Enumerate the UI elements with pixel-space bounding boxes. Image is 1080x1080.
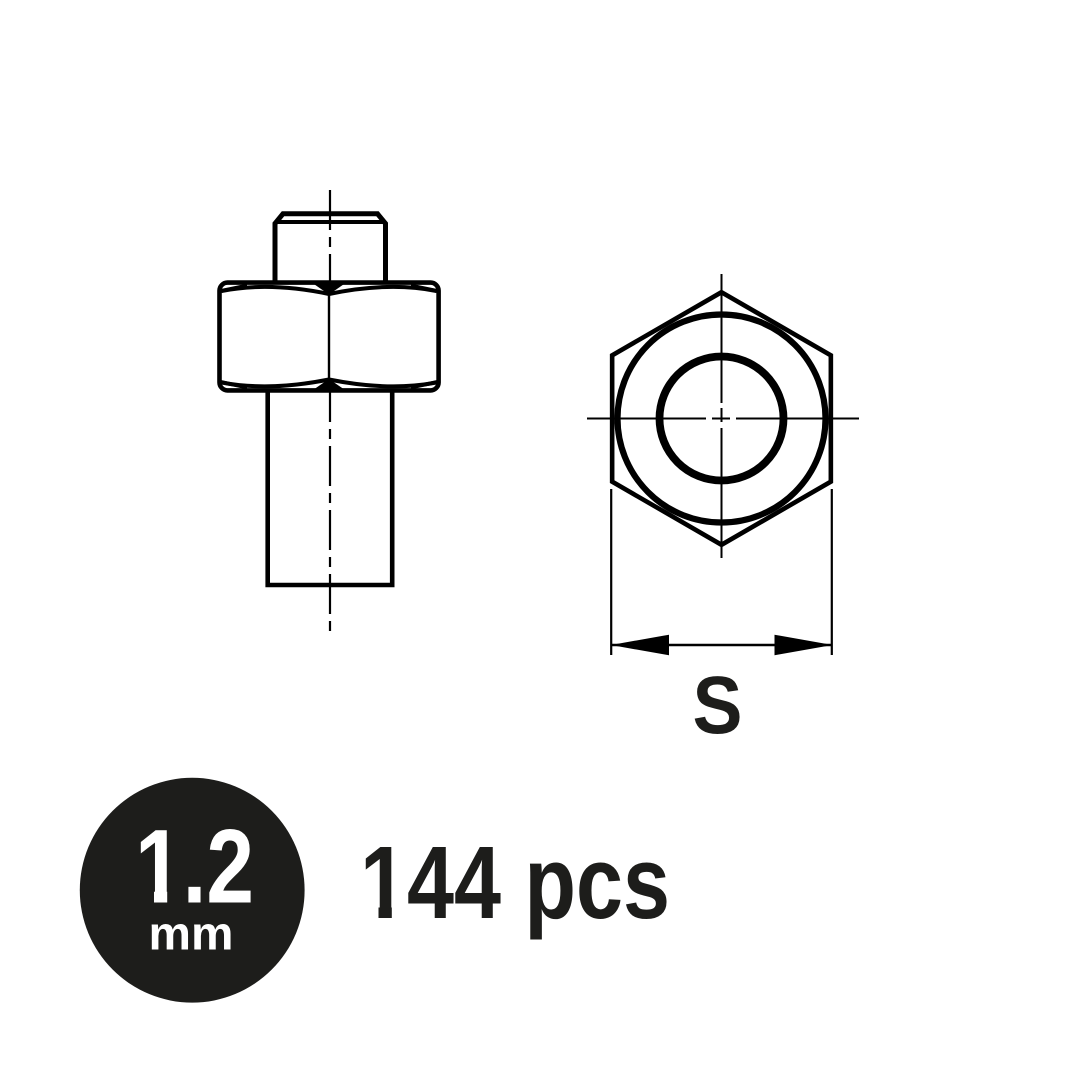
svg-text:mm: mm	[149, 907, 234, 960]
svg-text:S: S	[693, 660, 743, 751]
svg-text:144 pcs: 144 pcs	[360, 825, 670, 940]
